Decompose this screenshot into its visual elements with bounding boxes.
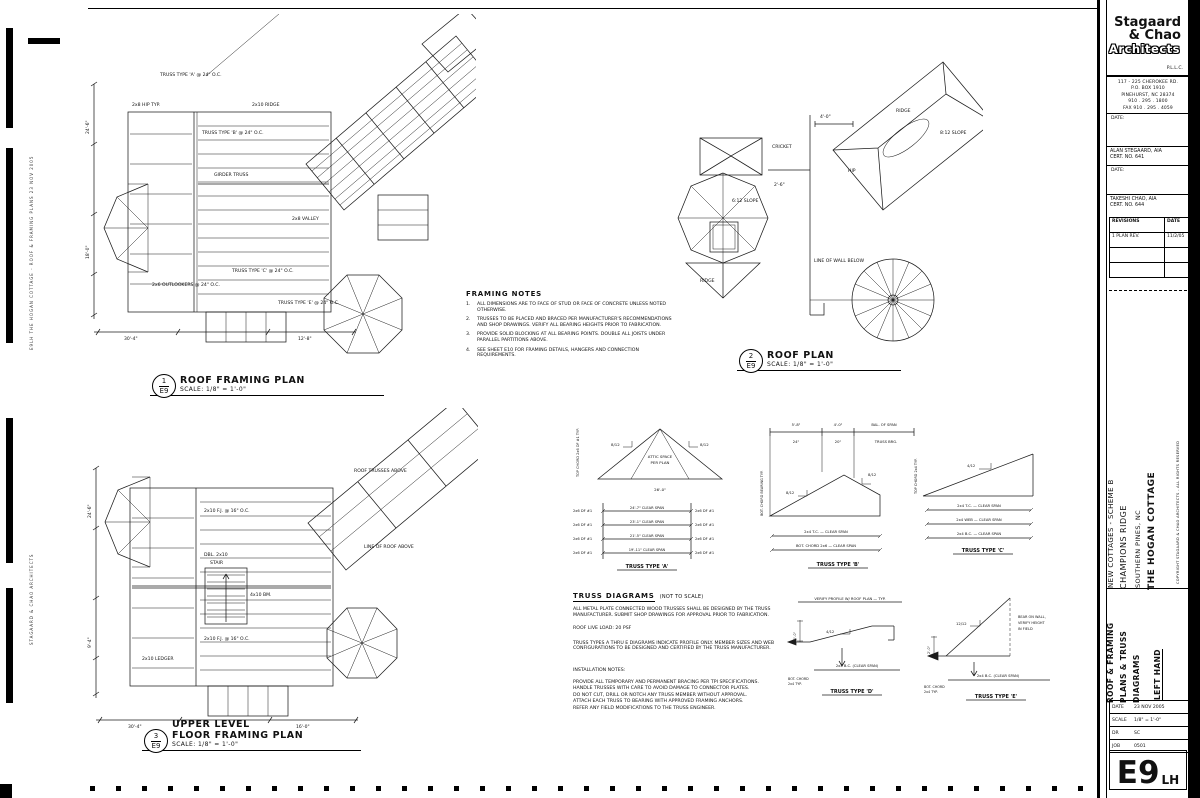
svg-text:2x6 DF #1: 2x6 DF #1 [695,551,714,555]
truss-d-caption: TRUSS TYPE 'D' [830,689,874,695]
dim-label: 18'-0" [85,245,91,259]
dim-label: 24'-6" [85,120,91,134]
svg-text:2x10 LEDGER: 2x10 LEDGER [142,656,174,662]
sheet-title-line-1: ROOF & FRAMING [1106,623,1115,703]
sheet-title-line-2: PLANS & TRUSS [1119,631,1128,703]
svg-text:2'-6": 2'-6" [774,182,785,188]
truss-e-outline: 12/12 2'-0" [927,598,1010,660]
plan1-scale: SCALE: 1/8" = 1'-0" [180,386,380,393]
svg-text:2x6 DF #1: 2x6 DF #1 [573,509,592,513]
revisions-table: REVISIONS DATE 1 PLAN REV. 11/2/05 [1109,217,1189,278]
svg-text:2x4 B.C. (CLEAR SPAN): 2x4 B.C. (CLEAR SPAN) [977,674,1020,678]
svg-text:2x8 VALLEY: 2x8 VALLEY [292,216,319,222]
svg-text:1'-0": 1'-0" [793,632,797,640]
svg-text:2x6 OUTLOOKERS @ 24" O.C.: 2x6 OUTLOOKERS @ 24" O.C. [152,282,220,288]
date-label: DATE: [1111,168,1125,173]
framing-notes-heading: FRAMING NOTES [466,290,674,298]
titleblock-border [1097,0,1100,798]
svg-text:VERIFY HEIGHT: VERIFY HEIGHT [1018,621,1046,625]
svg-text:BOT. CHORD: BOT. CHORD [788,677,809,681]
date-label: DATE: [1111,116,1125,121]
top-border-line [88,8,1098,9]
svg-text:4/12: 4/12 [826,630,834,634]
svg-text:2x6 DF #1: 2x6 DF #1 [695,509,714,513]
plot-stamp: E9LH THE HOGAN COTTAGE - ROOF & FRAMING … [29,156,34,350]
plot-stamp: STAGAARD & CHAO ARCHITECTS [29,554,34,645]
plan2-title: ROOF PLAN [767,350,897,361]
plan3-scale: SCALE: 1/8" = 1'-0" [172,741,357,748]
svg-text:2x6 DF #1: 2x6 DF #1 [573,551,592,555]
svg-text:2x4 WEB — CLEAR SPAN: 2x4 WEB — CLEAR SPAN [956,518,1002,522]
svg-text:PER PLAN: PER PLAN [651,460,670,465]
truss-type-e-diagram: 12/12 2'-0" BEAR ON WALL, VERIFY HEIGHT … [918,578,1070,704]
svg-text:BOT. CHORD 2x6 — CLEAR SPAN: BOT. CHORD 2x6 — CLEAR SPAN [796,544,856,548]
svg-text:2x10 RIDGE: 2x10 RIDGE [252,102,280,108]
svg-text:TOP CHORD 2x4 TYP.: TOP CHORD 2x4 TYP. [914,458,918,495]
svg-text:TRUSS TYPE 'A' @ 24" O.C.: TRUSS TYPE 'A' @ 24" O.C. [159,72,222,78]
dim-label: 30'-4" [128,724,142,730]
svg-text:BEAR ON WALL,: BEAR ON WALL, [1018,615,1046,619]
plan3-title: FLOOR FRAMING PLAN [172,730,357,741]
svg-text:GIRDER TRUSS: GIRDER TRUSS [214,172,248,178]
dim-label: 9'-4" [87,637,93,648]
svg-text:RIDGE: RIDGE [700,278,715,284]
svg-text:2x4 B.C. (CLEAR SPAN): 2x4 B.C. (CLEAR SPAN) [836,664,879,668]
sheet-number: E9 [1117,760,1160,786]
svg-text:2x6 DF #1: 2x6 DF #1 [573,523,592,527]
plan3-callouts: 2x10 F.J. @ 16" O.C. DBL. 2x10 4x10 BM. … [142,468,414,662]
bottom-tick-strip [90,786,1095,791]
svg-text:BAL. OF SPAN: BAL. OF SPAN [871,423,896,427]
bottom-left-mark [0,784,12,798]
firm-suffix: P.L.L.C. [1107,66,1183,71]
plan1-callouts: TRUSS TYPE 'A' @ 24" O.C. 2x10 RIDGE TRU… [132,72,339,306]
svg-text:ATTIC SPACE: ATTIC SPACE [648,454,673,459]
svg-text:2x10 F.J. @ 16" O.C.: 2x10 F.J. @ 16" O.C. [204,636,250,642]
plan1-title: ROOF FRAMING PLAN [180,375,380,386]
main-body-framing [128,112,428,342]
turret-octagon [324,275,402,353]
svg-text:LINE OF ROOF ABOVE: LINE OF ROOF ABOVE [364,544,414,550]
svg-text:2x4 TYP.: 2x4 TYP. [788,682,802,686]
svg-text:VERIFY PROFILE W/ ROOF PLAN —: VERIFY PROFILE W/ ROOF PLAN — TYP. [814,597,885,601]
truss-b-span-lines: 2x4 T.C. — CLEAR SPAN BOT. CHORD 2x6 — C… [770,530,882,552]
svg-text:BOT. CHORD: BOT. CHORD [924,685,945,689]
copyright-note: COPYRIGHT STAGAARD & CHAO ARCHITECTS - A… [1176,441,1180,584]
framing-notes: FRAMING NOTES 1.ALL DIMENSIONS ARE TO FA… [466,290,674,359]
hand-designation: LEFT HAND [1153,649,1163,700]
svg-text:4'-0": 4'-0" [834,423,843,427]
rotated-wing-rafters [306,14,476,210]
project-name: THE HOGAN COTTAGE [1147,472,1157,590]
svg-text:5'-8": 5'-8" [792,423,801,427]
svg-text:TRUSS TYPE 'B' @ 24" O.C.: TRUSS TYPE 'B' @ 24" O.C. [201,130,264,136]
turret-octagon [327,608,397,678]
svg-text:TRUSS TYPE 'C' @ 24" O.C.: TRUSS TYPE 'C' @ 24" O.C. [231,268,294,274]
firm-address: 117 - 225 CHEROKEE RD. P.O. BOX 1910 PIN… [1107,80,1189,112]
architect-2: TAKESHI CHAO, AIA CERT. NO. 644 [1110,197,1157,209]
truss-notes-heading: TRUSS DIAGRAMS [573,592,655,602]
plan1-detail-bubble: 1 E9 [152,374,176,398]
svg-text:2x6 DF #1: 2x6 DF #1 [695,537,714,541]
revisions-header: REVISIONS [1110,218,1165,232]
truss-e-caption: TRUSS TYPE 'E' [975,694,1018,700]
svg-text:2x4 TYP.: 2x4 TYP. [924,690,938,694]
plan1-label: ROOF FRAMING PLAN SCALE: 1/8" = 1'-0" [150,374,384,396]
svg-text:2x6 DF #1: 2x6 DF #1 [573,537,592,541]
truss-type-c-diagram: 4/12 TOP CHORD 2x4 TYP. 2x4 T.C. — CLEAR… [913,438,1057,560]
svg-text:2x6 DF #1: 2x6 DF #1 [695,523,714,527]
drawing-sheet: E9LH THE HOGAN COTTAGE - ROOF & FRAMING … [0,0,1200,798]
sheet-number-suffix: LH [1162,774,1180,786]
svg-text:12/12: 12/12 [956,622,967,626]
svg-text:2x10 F.J. @ 16" O.C.: 2x10 F.J. @ 16" O.C. [204,508,250,514]
svg-text:6:12 SLOPE: 6:12 SLOPE [732,198,758,204]
title-block: Stagaard & Chao Architects P.L.L.C. 117 … [1106,0,1189,798]
truss-b-caption: TRUSS TYPE 'B' [817,562,860,568]
svg-text:CRICKET: CRICKET [772,144,792,150]
left-roof-cluster [678,138,768,298]
left-bay-octagon [104,184,148,272]
architect-1: ALAN STEGAARD, AIA CERT. NO. 641 [1110,149,1162,161]
revision-entry: 1 PLAN REV. [1110,233,1165,247]
truss-notes-heading-suffix: (NOT TO SCALE) [660,594,704,600]
turret-roof [852,259,934,341]
plan2-scale: SCALE: 1/8" = 1'-0" [767,361,897,368]
project-line-3: SOUTHERN PINES, NC [1134,510,1142,588]
svg-text:4'-0": 4'-0" [820,114,831,120]
truss-type-b-diagram: 5'-8" 4'-0" BAL. OF SPAN 24" 20" TRUSS B… [758,416,922,574]
revisions-date-header: DATE [1165,218,1188,232]
svg-text:4/12: 4/12 [967,464,975,468]
sheet-title-line-3: DIAGRAMS [1132,654,1141,703]
svg-text:4x10 BM.: 4x10 BM. [250,592,272,598]
svg-text:21'-5" CLEAR SPAN: 21'-5" CLEAR SPAN [630,534,664,538]
svg-text:HIP: HIP [848,168,856,174]
svg-text:19'-11" CLEAR SPAN: 19'-11" CLEAR SPAN [629,548,666,552]
dim-label: 30'-4" [124,336,138,342]
plan2-callouts: RIDGE HIP 8:12 SLOPE 6:12 SLOPE CRICKET … [700,108,966,284]
truss-b-outline [770,475,880,516]
sheet-info-table: DATE23 NOV 2005 SCALE1/8" = 1'-0" DRSC J… [1109,700,1189,753]
plan3-label: UPPER LEVEL FLOOR FRAMING PLAN SCALE: 1/… [142,718,361,751]
svg-text:BOT. CHORD BEARING TYP.: BOT. CHORD BEARING TYP. [760,470,764,516]
plan3-pretitle: UPPER LEVEL [172,719,357,730]
sheet-number-box: E9 LH [1109,750,1187,790]
svg-text:LINE OF WALL BELOW: LINE OF WALL BELOW [814,258,865,264]
svg-text:2x8 HIP TYP.: 2x8 HIP TYP. [132,102,160,108]
truss-type-a-diagram: 8/12 8/12 ATTIC SPACE PER PLAN 26'-0" TO… [571,419,725,573]
truss-c-outline [923,454,1033,496]
main-body-joists [130,488,333,716]
svg-text:2'-0": 2'-0" [927,646,931,654]
svg-text:23'-1" CLEAR SPAN: 23'-1" CLEAR SPAN [630,520,664,524]
svg-text:ROOF TRUSSES ABOVE: ROOF TRUSSES ABOVE [354,468,407,474]
truss-c-caption: TRUSS TYPE 'C' [962,548,1005,554]
project-line-2: CHAMPIONS RIDGE [1119,505,1128,589]
roof-framing-plan-drawing: 24'-6" 18'-0" 30'-4" 12'-8" [56,14,476,378]
truss-notes: TRUSS DIAGRAMS (NOT TO SCALE) ALL METAL … [573,583,778,712]
svg-text:TRUSS TYPE 'E' @ 24" O.C.: TRUSS TYPE 'E' @ 24" O.C. [277,300,339,306]
plan3-detail-bubble: 3 E9 [144,729,168,753]
truss-a-span-table: 2x6 DF #1 24'-7" CLEAR SPAN 2x6 DF #1 2x… [573,503,714,559]
svg-text:STAIR: STAIR [210,560,224,566]
svg-text:IN FIELD: IN FIELD [1018,627,1033,631]
svg-text:2x4 T.C. — CLEAR SPAN: 2x4 T.C. — CLEAR SPAN [957,504,1001,508]
svg-text:2x4 B.C. — CLEAR SPAN: 2x4 B.C. — CLEAR SPAN [957,532,1002,536]
truss-b-heel-schedule: 5'-8" 4'-0" BAL. OF SPAN 24" 20" TRUSS B… [770,423,914,516]
dim-label: 24'-6" [87,504,93,518]
project-line-1: NEW COTTAGES - SCHEME B [1107,479,1115,588]
svg-text:RIDGE: RIDGE [896,108,911,114]
truss-d-outline: 4/12 1'-0" [788,620,894,645]
firm-logo: Stagaard & Chao Architects [1107,16,1187,56]
svg-text:TRUSS BRG.: TRUSS BRG. [874,440,898,444]
truss-type-d-diagram: VERIFY PROFILE W/ ROOF PLAN — TYP. 4/12 … [780,590,924,700]
svg-text:2x4 T.C. — CLEAR SPAN: 2x4 T.C. — CLEAR SPAN [804,530,848,534]
svg-text:8/12: 8/12 [611,442,620,447]
roof-plan-drawing: RIDGE HIP 8:12 SLOPE 6:12 SLOPE CRICKET … [648,50,983,352]
left-edge-bar [6,148,13,343]
left-edge-bar [6,28,13,128]
svg-text:DBL. 2x10: DBL. 2x10 [204,552,228,558]
svg-text:26'-0": 26'-0" [654,487,666,492]
svg-text:8/12: 8/12 [786,491,794,495]
svg-text:8/12: 8/12 [868,473,876,477]
svg-text:8/12: 8/12 [700,442,709,447]
left-edge-bar [6,418,13,563]
svg-text:20": 20" [835,440,842,444]
svg-text:TOP CHORD 2x6 DF #1 TYP.: TOP CHORD 2x6 DF #1 TYP. [576,428,580,478]
plan2-detail-bubble: 2 E9 [739,349,763,373]
svg-text:24'-7" CLEAR SPAN: 24'-7" CLEAR SPAN [630,506,664,510]
floor-framing-plan-drawing: 24'-6" 9'-4" 30'-4" 16'-0" [58,408,478,736]
left-edge-bar [6,588,13,703]
right-edge-bar [1188,0,1200,798]
svg-text:24": 24" [793,440,800,444]
left-bay-octagon [105,477,150,567]
dim-label: 12'-8" [298,336,312,342]
truss-c-span-lines: 2x4 T.C. — CLEAR SPAN 2x4 WEB — CLEAR SP… [925,504,1033,540]
truss-a-caption: TRUSS TYPE 'A' [626,564,669,570]
rotated-hip-roof [833,62,983,210]
svg-text:8:12 SLOPE: 8:12 SLOPE [940,130,966,136]
